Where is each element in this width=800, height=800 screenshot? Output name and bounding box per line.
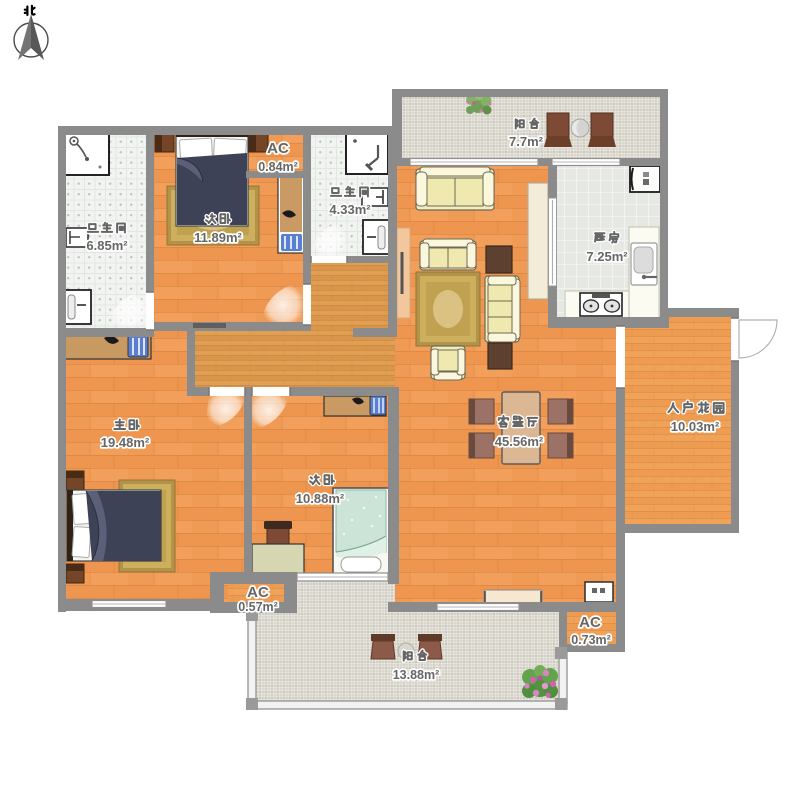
svg-text:AC: AC bbox=[267, 140, 289, 157]
svg-text:0.73m²: 0.73m² bbox=[571, 633, 611, 647]
svg-text:7.25m²: 7.25m² bbox=[586, 249, 628, 264]
svg-text:0.84m²: 0.84m² bbox=[258, 160, 298, 174]
svg-text:13.88m²: 13.88m² bbox=[393, 668, 440, 682]
svg-text:19.48m²: 19.48m² bbox=[101, 435, 150, 450]
svg-text:AC: AC bbox=[579, 614, 601, 631]
svg-text:4.33m²: 4.33m² bbox=[329, 202, 371, 217]
svg-text:0.57m²: 0.57m² bbox=[238, 600, 278, 614]
svg-text:7.7m²: 7.7m² bbox=[509, 134, 544, 149]
svg-text:AC: AC bbox=[247, 584, 269, 601]
svg-text:10.88m²: 10.88m² bbox=[296, 491, 345, 506]
svg-text:45.56m²: 45.56m² bbox=[495, 434, 544, 449]
svg-text:6.85m²: 6.85m² bbox=[86, 238, 128, 253]
svg-text:11.89m²: 11.89m² bbox=[194, 230, 242, 245]
svg-text:10.03m²: 10.03m² bbox=[671, 419, 720, 434]
